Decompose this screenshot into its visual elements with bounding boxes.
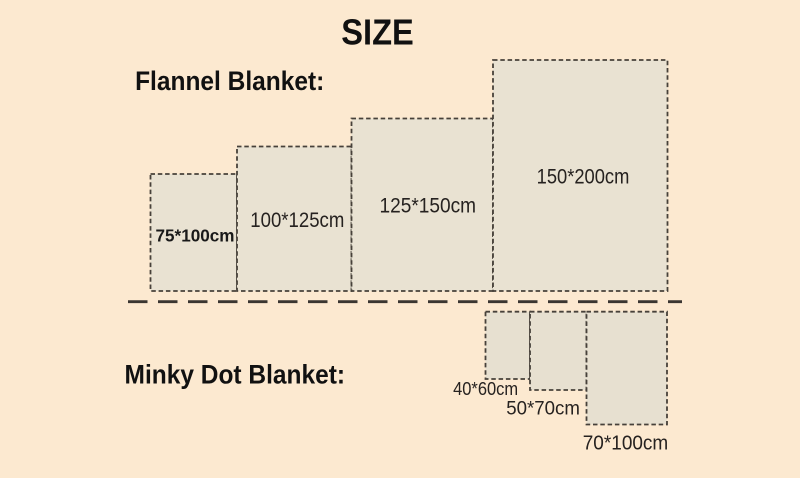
svg-text:100*125cm: 100*125cm [250, 209, 344, 232]
svg-text:70*100cm: 70*100cm [583, 432, 669, 454]
svg-text:150*200cm: 150*200cm [537, 166, 630, 189]
svg-text:SIZE: SIZE [341, 11, 414, 52]
svg-text:125*150cm: 125*150cm [380, 195, 477, 218]
svg-text:Flannel Blanket:: Flannel Blanket: [135, 66, 324, 96]
svg-text:40*60cm: 40*60cm [453, 379, 518, 399]
svg-text:50*70cm: 50*70cm [506, 399, 580, 420]
svg-text:75*100cm: 75*100cm [156, 226, 235, 246]
svg-text:Minky Dot Blanket:: Minky Dot Blanket: [125, 360, 346, 390]
